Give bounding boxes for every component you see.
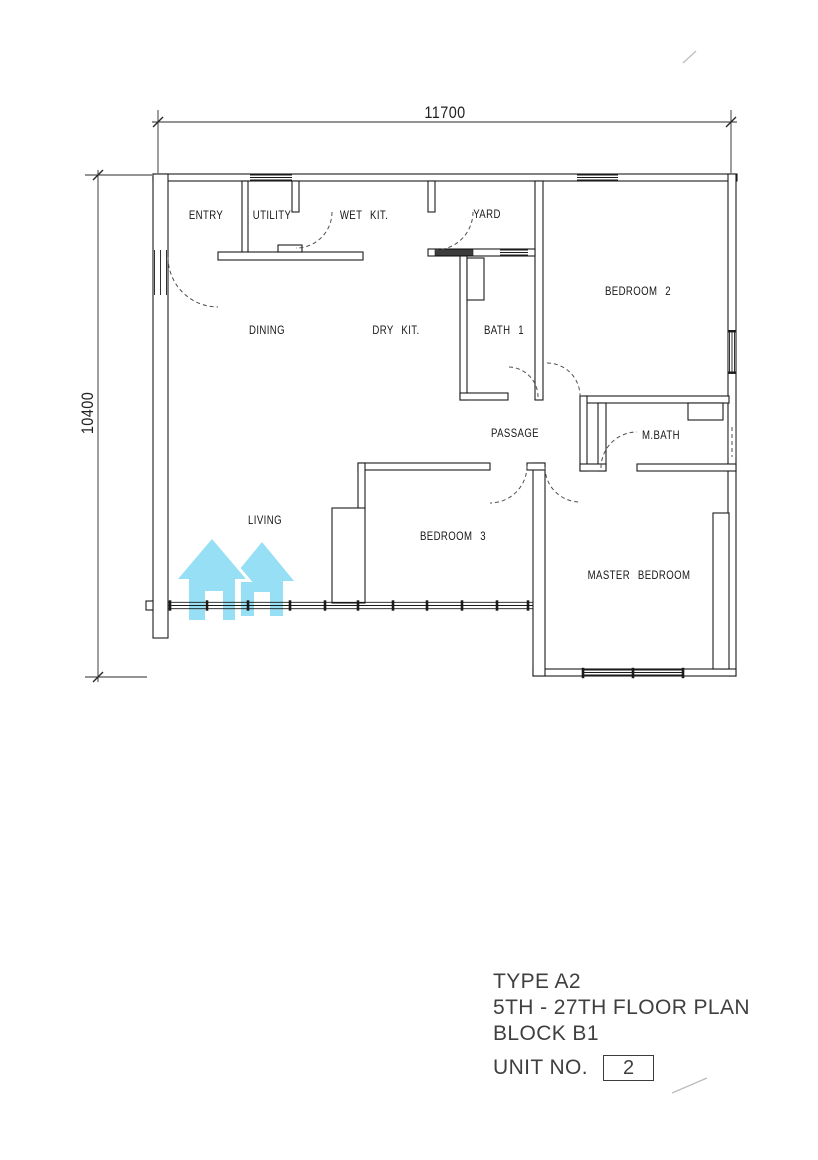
room-label-dining: DINING	[249, 324, 285, 336]
room-label-yard: YARD	[473, 208, 501, 220]
room-label-bath1: BATH 1	[484, 324, 524, 336]
room-label-dry-kitchen: DRY KIT.	[372, 324, 419, 336]
room-label-entry: ENTRY	[189, 209, 223, 221]
unit-number-label: UNIT NO.	[493, 1056, 588, 1079]
unit-number-box: 2	[603, 1055, 654, 1081]
room-label-master-bedroom: MASTER BEDROOM	[588, 569, 691, 581]
unit-number-row: UNIT NO. 2	[493, 1054, 588, 1082]
room-label-wet-kitchen: WET KIT.	[340, 209, 388, 221]
twin-house-watermark-icon	[178, 539, 294, 620]
room-label-utility: UTILITY	[253, 209, 292, 221]
room-label-master-bath: M.BATH	[642, 429, 680, 441]
room-label-passage: PASSAGE	[491, 427, 539, 439]
block-label: BLOCK B1	[493, 1021, 750, 1047]
dimension-height-label: 10400	[78, 392, 98, 434]
room-label-bedroom2: BEDROOM 2	[605, 285, 671, 297]
room-label-living: LIVING	[248, 514, 282, 526]
floor-plan-page: 11700 10400 ENTRY UTILITY WET KIT. YARD …	[0, 0, 818, 1160]
floor-range-label: 5TH - 27TH FLOOR PLAN	[493, 995, 750, 1021]
title-block: TYPE A2 5TH - 27TH FLOOR PLAN BLOCK B1	[493, 969, 750, 1047]
plan-type-label: TYPE A2	[493, 969, 750, 995]
walls	[153, 174, 737, 676]
room-label-bedroom3: BEDROOM 3	[420, 530, 486, 542]
dimension-width-label: 11700	[424, 103, 465, 123]
